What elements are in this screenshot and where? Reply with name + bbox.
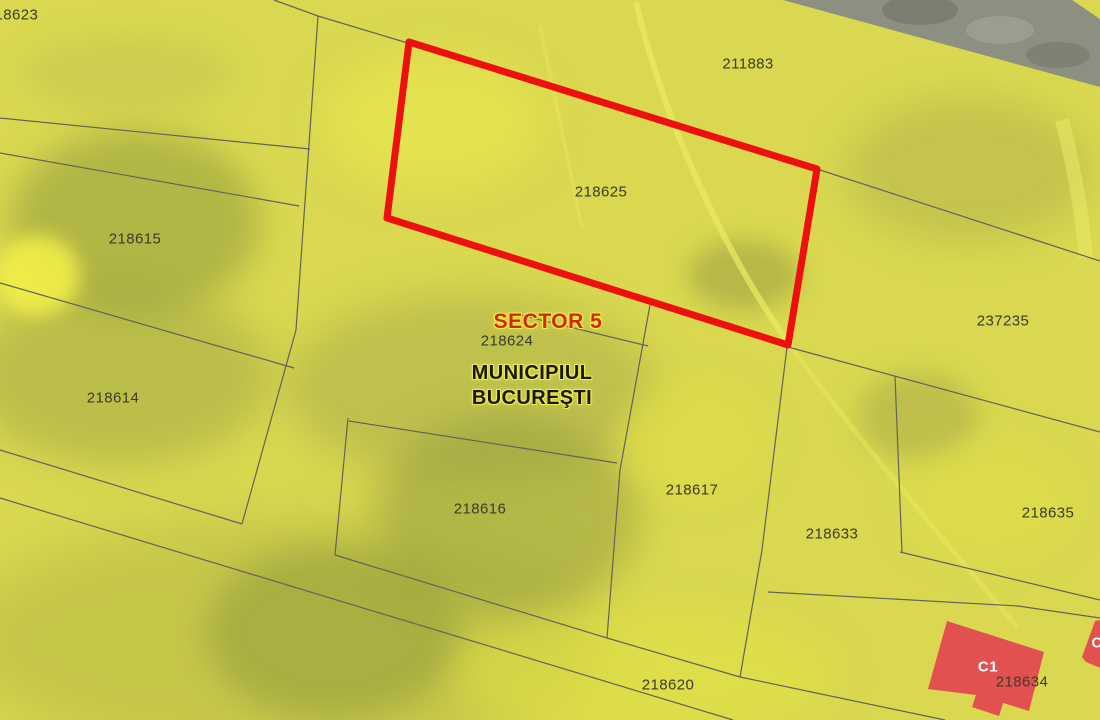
parcel-label: 218623 (0, 7, 38, 24)
municipality-line-1: MUNICIPIUL (472, 361, 593, 386)
parcel-label: 218616 (454, 501, 506, 518)
labels-layer: SECTOR 5 MUNICIPIUL BUCUREŞTI 2186232118… (0, 0, 1100, 720)
sector-label: SECTOR 5 (494, 310, 603, 334)
building-label: C (1091, 635, 1100, 652)
parcel-label: 218635 (1022, 505, 1074, 522)
parcel-label: 218633 (806, 526, 858, 543)
parcel-label: 218617 (666, 482, 718, 499)
map-canvas[interactable]: SECTOR 5 MUNICIPIUL BUCUREŞTI 2186232118… (0, 0, 1100, 720)
parcel-label: 218625 (575, 184, 627, 201)
parcel-label: 211883 (722, 56, 773, 73)
municipality-label: MUNICIPIUL BUCUREŞTI (472, 361, 593, 411)
sector-label-text: SECTOR 5 (494, 310, 603, 333)
parcel-label: 218634 (996, 674, 1048, 691)
parcel-label: 218614 (87, 390, 139, 407)
municipality-line-2: BUCUREŞTI (472, 386, 593, 411)
parcel-label: 218615 (109, 231, 161, 248)
building-label: C1 (978, 659, 998, 676)
parcel-label: 237235 (977, 313, 1029, 330)
parcel-label: 218624 (481, 333, 533, 350)
parcel-label: 218620 (642, 677, 694, 694)
